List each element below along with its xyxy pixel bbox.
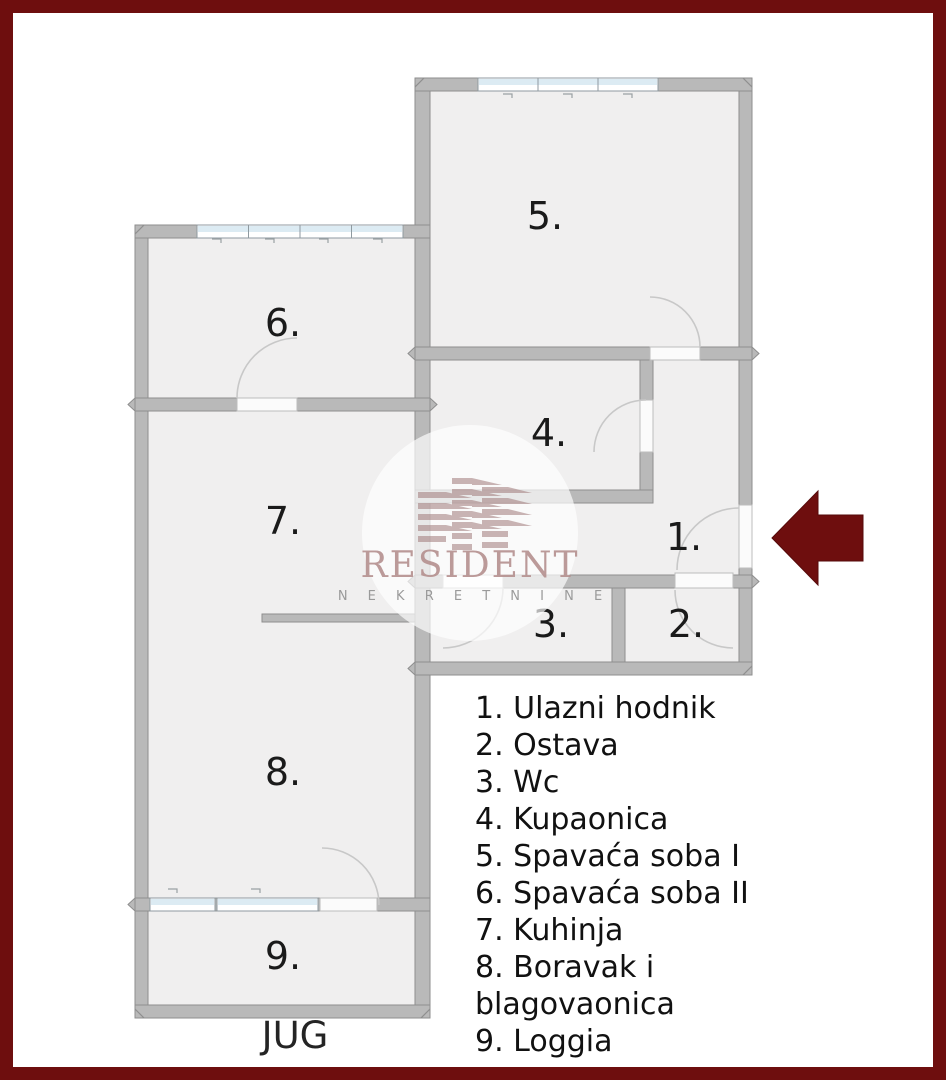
south-label: JUG (195, 1014, 395, 1057)
legend-item: 7. Kuhinja (475, 912, 805, 949)
window-room5 (478, 78, 658, 91)
room-label-6: 6. (265, 301, 301, 345)
wall-room3-room2-bottom (415, 662, 752, 675)
watermark-brand: RESIDENT (361, 545, 580, 586)
legend-item: 4. Kupaonica (475, 801, 805, 838)
legend-item: 3. Wc (475, 764, 805, 801)
window-room6 (197, 225, 403, 238)
legend-item: 2. Ostava (475, 727, 805, 764)
room-legend: 1. Ulazni hodnik 2. Ostava 3. Wc 4. Kupa… (475, 690, 805, 1060)
entrance-arrow-icon (772, 491, 863, 585)
legend-item: 9. Loggia (475, 1023, 805, 1060)
legend-item: 8. Boravak i blagovaonica (475, 949, 805, 1023)
watermark-subtitle: N E K R E T N I N E (338, 589, 610, 604)
kitchen-counter-halfwall (262, 614, 415, 622)
room-label-8: 8. (265, 750, 301, 794)
room-label-1: 1. (666, 515, 702, 559)
window-room8-left (150, 898, 215, 911)
legend-item: 6. Spavaća soba II (475, 875, 805, 912)
window-room8-right (217, 898, 318, 911)
room-label-7: 7. (265, 499, 301, 543)
wall-room5-room4 (415, 347, 752, 360)
room-label-2: 2. (668, 602, 704, 646)
room-label-9: 9. (265, 934, 301, 978)
legend-item: 5. Spavaća soba I (475, 838, 805, 875)
legend-item: 1. Ulazni hodnik (475, 690, 805, 727)
floorplan-page: 5. 6. 4. 7. 1. 3. 2. 8. 9. (0, 0, 946, 1080)
room-label-5: 5. (527, 194, 563, 238)
